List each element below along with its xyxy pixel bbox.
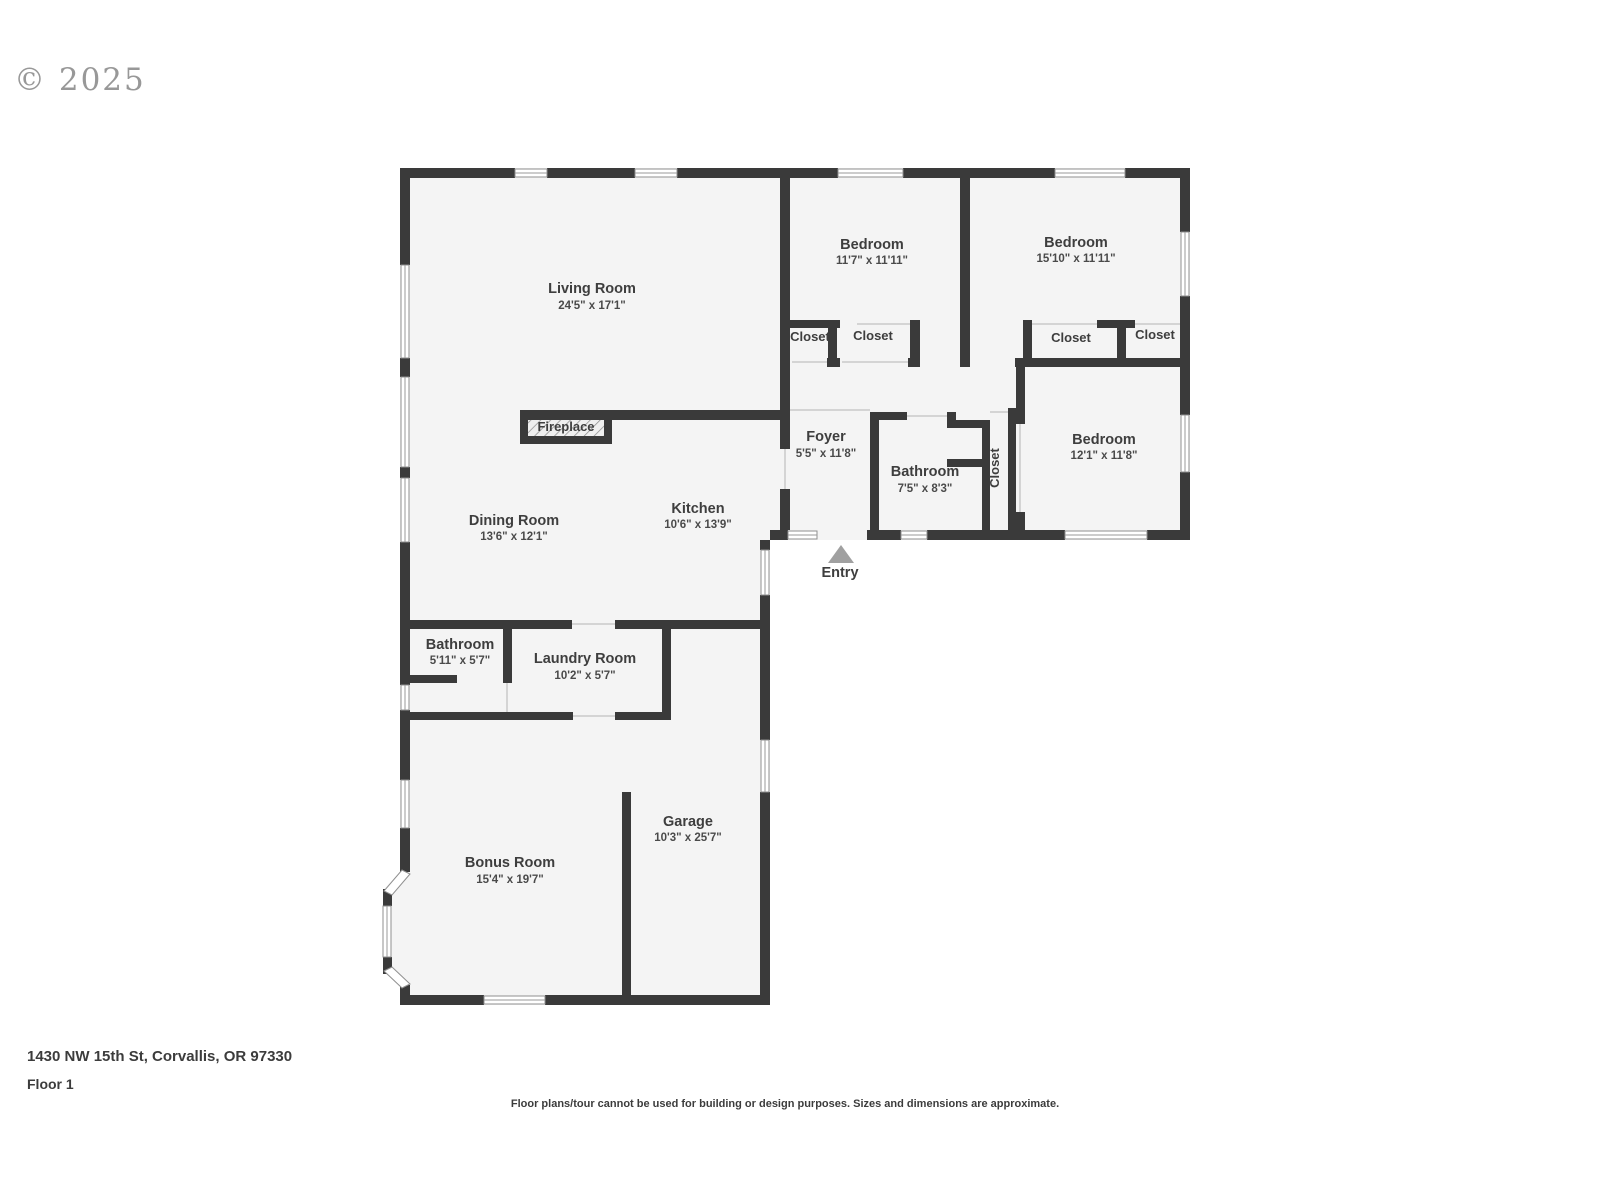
room-dims-bedroom-2: 15'10" x 11'11" [1036,253,1115,265]
closet-label-vertical: Closet [987,447,1002,487]
room-dims-bedroom-1: 11'7" x 11'11" [836,255,908,267]
room-label-bathroom-1: Bathroom [891,464,959,480]
floor-label: Floor 1 [27,1076,74,1092]
room-dims-garage: 10'3" x 25'7" [654,832,722,844]
room-label-bedroom-3: Bedroom [1072,432,1136,448]
property-address: 1430 NW 15th St, Corvallis, OR 97330 [27,1048,292,1065]
closet-label-3: Closet [1051,330,1091,345]
room-label-bedroom-1: Bedroom [840,237,904,253]
room-label-laundry-room: Laundry Room [534,651,636,667]
room-dims-kitchen: 10'6" x 13'9" [664,519,732,531]
disclaimer-text: Floor plans/tour cannot be used for buil… [400,1098,1170,1110]
closet-label-2: Closet [853,328,893,343]
room-label-bonus-room: Bonus Room [465,855,555,871]
entry-label: Entry [821,565,858,581]
entry-arrow-icon [828,545,854,563]
room-dims-living-room: 24'5" x 17'1" [558,300,626,312]
room-label-garage: Garage [663,814,713,830]
floor-plan-drawing: Fireplace Entry Living Room 24'5" x 17'1… [0,0,1600,1200]
room-label-bedroom-2: Bedroom [1044,235,1108,251]
room-label-dining-room: Dining Room [469,513,559,529]
room-dims-laundry-room: 10'2" x 5'7" [554,670,615,682]
floor-plan-page: © 2025 [0,0,1600,1200]
closet-label-4: Closet [1135,327,1175,342]
room-label-foyer: Foyer [806,429,846,445]
fireplace-label: Fireplace [537,419,594,434]
room-dims-foyer: 5'5" x 11'8" [796,448,857,460]
room-dims-bathroom-1: 7'5" x 8'3" [898,483,953,495]
room-label-bathroom-2: Bathroom [426,637,494,653]
room-dims-dining-room: 13'6" x 12'1" [480,531,548,543]
closet-label-1: Closet [790,329,830,344]
room-dims-bonus-room: 15'4" x 19'7" [476,874,544,886]
room-label-living-room: Living Room [548,281,636,297]
room-label-kitchen: Kitchen [671,501,724,517]
room-dims-bathroom-2: 5'11" x 5'7" [430,655,491,667]
room-dims-bedroom-3: 12'1" x 11'8" [1071,450,1138,462]
